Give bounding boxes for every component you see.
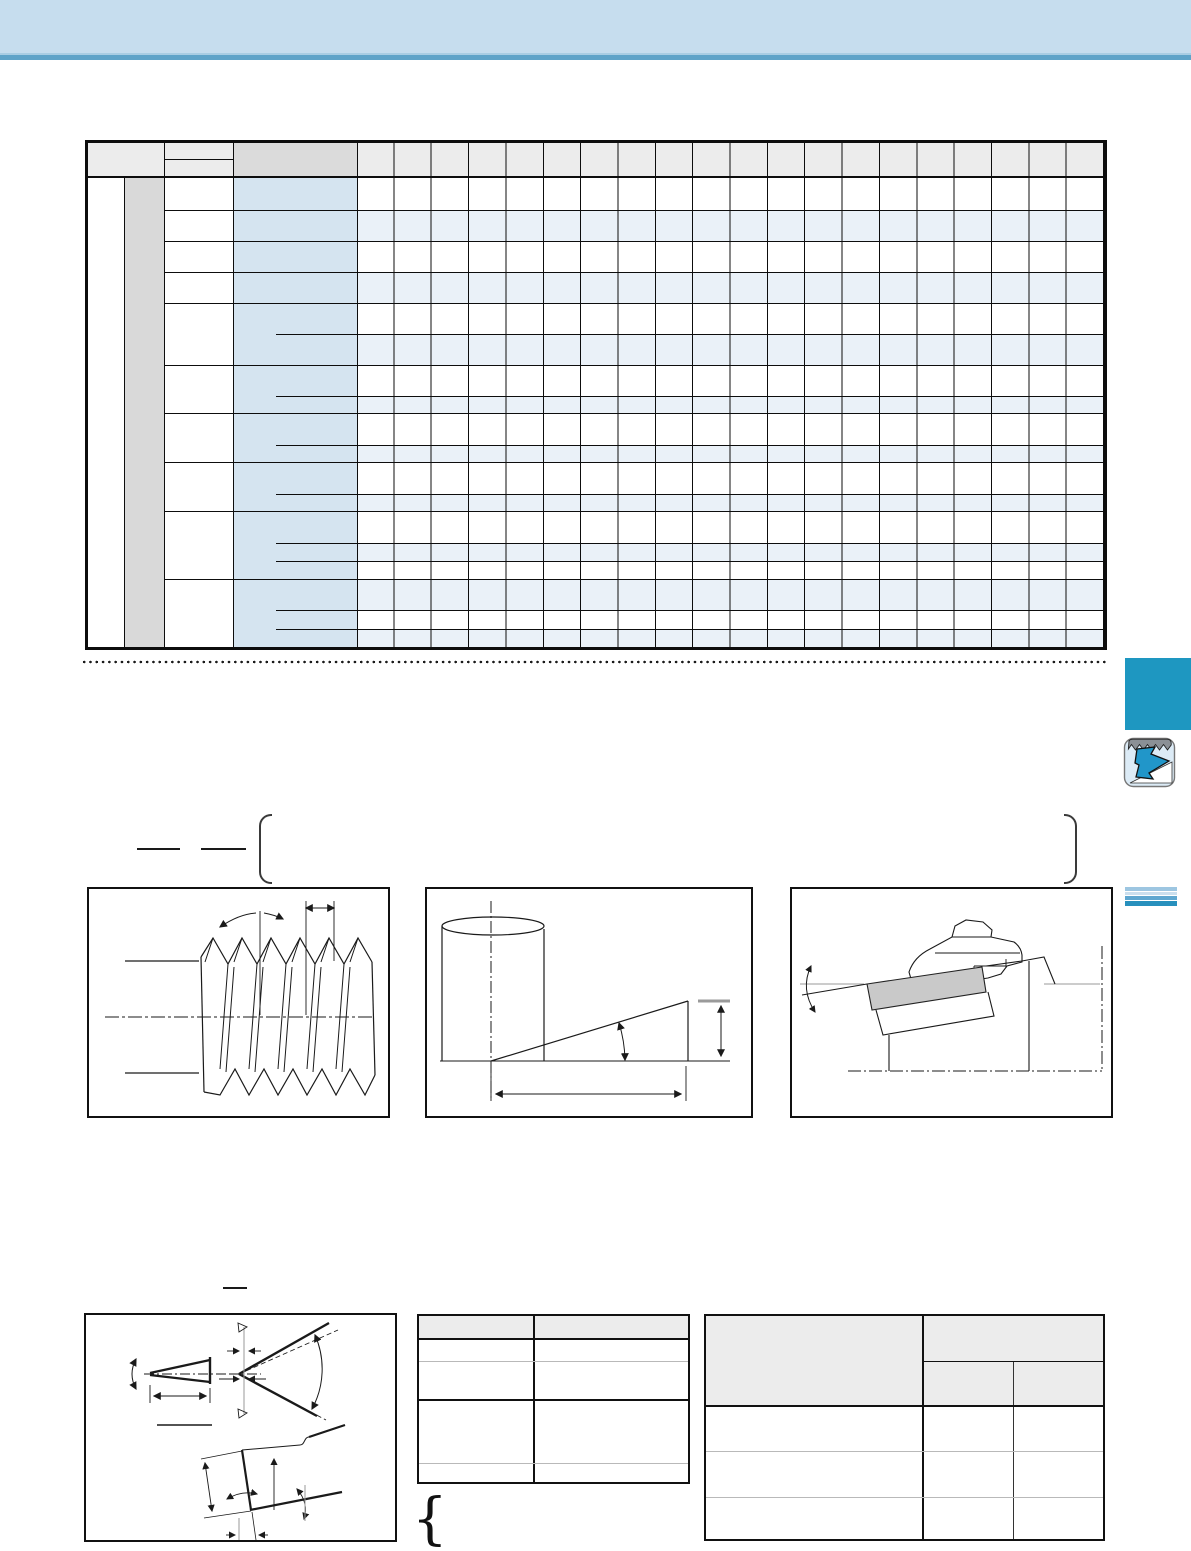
header-split-divider — [164, 159, 233, 160]
dotted-separator — [82, 660, 1106, 664]
tolerance-table — [417, 1314, 690, 1484]
group-line — [164, 413, 1104, 414]
subrow-line — [276, 543, 1104, 544]
fraction-bar-1 — [137, 848, 180, 850]
stripe-4 — [1125, 901, 1177, 906]
table-header-cell-designation — [233, 143, 357, 178]
footnote-brace: { — [412, 1492, 448, 1548]
tolerance-table-line1 — [419, 1338, 688, 1340]
header-bottom-line — [88, 176, 1104, 178]
v-sep-b — [164, 143, 165, 647]
subrow-line — [276, 494, 1104, 495]
group-line — [164, 511, 1104, 512]
tolerance-table-line2 — [419, 1361, 688, 1362]
table-header-cell-split — [164, 143, 233, 178]
group-line — [164, 210, 1104, 211]
pitch-selection-table — [85, 140, 1107, 650]
stripe-2 — [1125, 892, 1177, 895]
thread-profile-drawing — [89, 889, 388, 1116]
fraction-bar-2 — [201, 848, 246, 850]
v-sep-a — [124, 178, 125, 647]
subrow-line — [276, 334, 1104, 335]
figure-helix-angle — [425, 887, 753, 1118]
page: { — [0, 0, 1191, 1551]
recommendation-row-line2 — [706, 1497, 1103, 1498]
table-header-cell-left — [88, 143, 164, 178]
figure-toolholder — [790, 887, 1113, 1118]
bracket-right — [1064, 814, 1077, 884]
toolholder-drawing — [792, 889, 1111, 1116]
top-banner — [0, 0, 1191, 53]
figure-thread-form — [84, 1313, 397, 1542]
subrow-line — [276, 610, 1104, 611]
group-line — [164, 241, 1104, 242]
recommendation-header-bottom — [706, 1405, 1103, 1407]
tolerance-table-line3 — [419, 1399, 688, 1401]
subrow-line — [276, 396, 1104, 397]
recommendation-row-line1 — [706, 1451, 1103, 1452]
tolerance-table-line4 — [419, 1463, 688, 1464]
group-line — [164, 303, 1104, 304]
stripe-3 — [1125, 896, 1177, 900]
group-line — [164, 579, 1104, 580]
recommendation-table — [704, 1314, 1105, 1541]
subrow-line — [276, 561, 1104, 562]
top-banner-accent-line — [0, 55, 1191, 60]
v-sep-d — [357, 143, 358, 647]
threading-section-icon — [1123, 737, 1177, 789]
group-line — [164, 462, 1104, 463]
left-gray-band — [124, 178, 164, 647]
fraction-bar-3 — [223, 1287, 247, 1289]
group-line — [164, 365, 1104, 366]
thread-form-drawing — [86, 1315, 395, 1540]
section-tab — [1125, 658, 1191, 730]
group-line — [164, 272, 1104, 273]
helix-angle-drawing — [427, 889, 751, 1116]
threading-icon-graphic — [1123, 737, 1177, 789]
v-sep-c — [233, 143, 234, 647]
tolerance-table-header — [419, 1316, 688, 1339]
bracket-left — [259, 814, 272, 884]
figure-thread-profile — [87, 887, 390, 1118]
stripe-1 — [1125, 887, 1177, 891]
subrow-line — [276, 629, 1104, 630]
column-grid-lines — [357, 143, 1104, 647]
recommendation-vsep-main — [922, 1316, 924, 1539]
subrow-line — [276, 445, 1104, 446]
